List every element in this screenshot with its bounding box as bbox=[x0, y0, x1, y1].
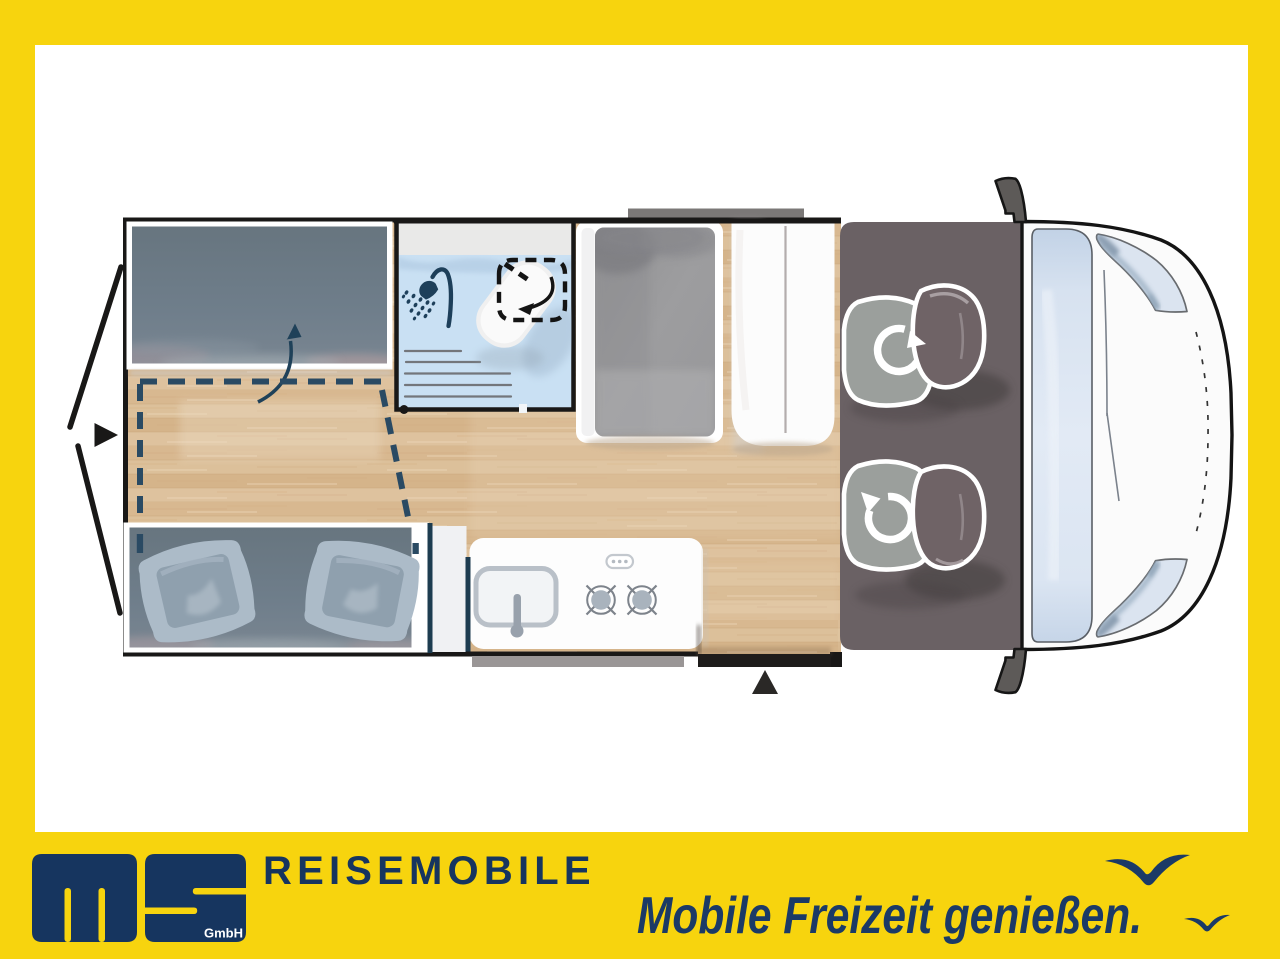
svg-text:REISEMOBILE: REISEMOBILE bbox=[263, 849, 596, 893]
svg-text:GmbH: GmbH bbox=[204, 926, 243, 941]
svg-text:Mobile Freizeit genießen.: Mobile Freizeit genießen. bbox=[637, 887, 1142, 945]
